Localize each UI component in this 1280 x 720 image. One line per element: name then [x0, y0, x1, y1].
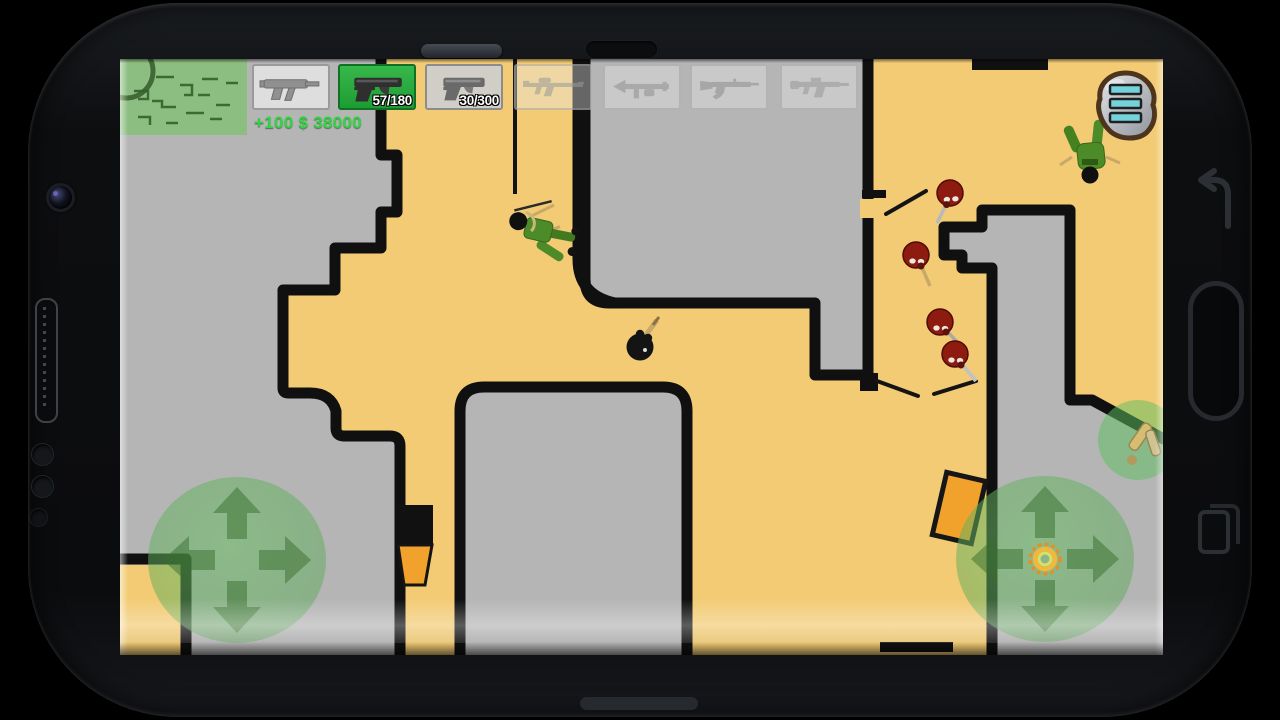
weapon-slot-smg[interactable]	[252, 64, 330, 110]
camera-lens-icon	[46, 183, 75, 212]
sensor-dot	[32, 444, 53, 465]
minimap	[120, 59, 247, 135]
sensor-dot	[32, 476, 53, 497]
hamburger-icon	[1110, 85, 1141, 122]
weapon-slot-pistol2[interactable]: 30/300	[425, 64, 503, 110]
door-frame-stub	[862, 190, 886, 198]
sensor-dot	[30, 509, 47, 526]
ammo-count: 57/180	[373, 93, 413, 108]
arrow-left	[163, 536, 215, 584]
speaker-grille	[35, 298, 58, 423]
home-bar	[580, 697, 698, 710]
recents-key-icon[interactable]	[1196, 500, 1242, 558]
wall-bottom-bar	[880, 642, 953, 652]
open-door-orange-bottom	[398, 545, 432, 585]
back-key-icon[interactable]	[1194, 168, 1238, 234]
doorway-gap	[860, 199, 881, 218]
weapon-slot-m16[interactable]	[514, 64, 592, 110]
arrow-down	[1021, 580, 1069, 632]
arrow-down	[213, 581, 261, 633]
weapon-slot-carbine[interactable]	[780, 64, 858, 110]
arrow-left	[971, 535, 1023, 583]
ammo-count: 30/300	[460, 93, 500, 108]
home-key[interactable]	[1188, 281, 1244, 421]
weapon-slot-rpg[interactable]	[603, 64, 681, 110]
muzzle-flash-icon	[1019, 533, 1071, 585]
earpiece-speaker	[421, 44, 502, 58]
wall-top-bar	[972, 59, 1048, 70]
menu-button[interactable]	[1093, 69, 1159, 145]
stage: { "app": { "title": "Stickman top-down s…	[0, 0, 1280, 720]
move-joystick[interactable]	[148, 477, 326, 643]
arrow-up	[1021, 486, 1069, 538]
money-text: +100 $ 38000	[254, 113, 362, 133]
arrow-right	[259, 536, 311, 584]
arrow-up	[213, 487, 261, 539]
door-dark	[396, 505, 433, 545]
game-screen[interactable]: 57/180 30/300	[120, 59, 1163, 655]
front-camera-slot	[586, 41, 657, 58]
weapon-slot-pistol-selected[interactable]: 57/180	[338, 64, 416, 110]
weapon-slot-ak47[interactable]	[690, 64, 768, 110]
phone-frame: 57/180 30/300	[28, 3, 1252, 717]
arrow-right	[1067, 535, 1119, 583]
gray-block-bottom	[460, 387, 687, 655]
